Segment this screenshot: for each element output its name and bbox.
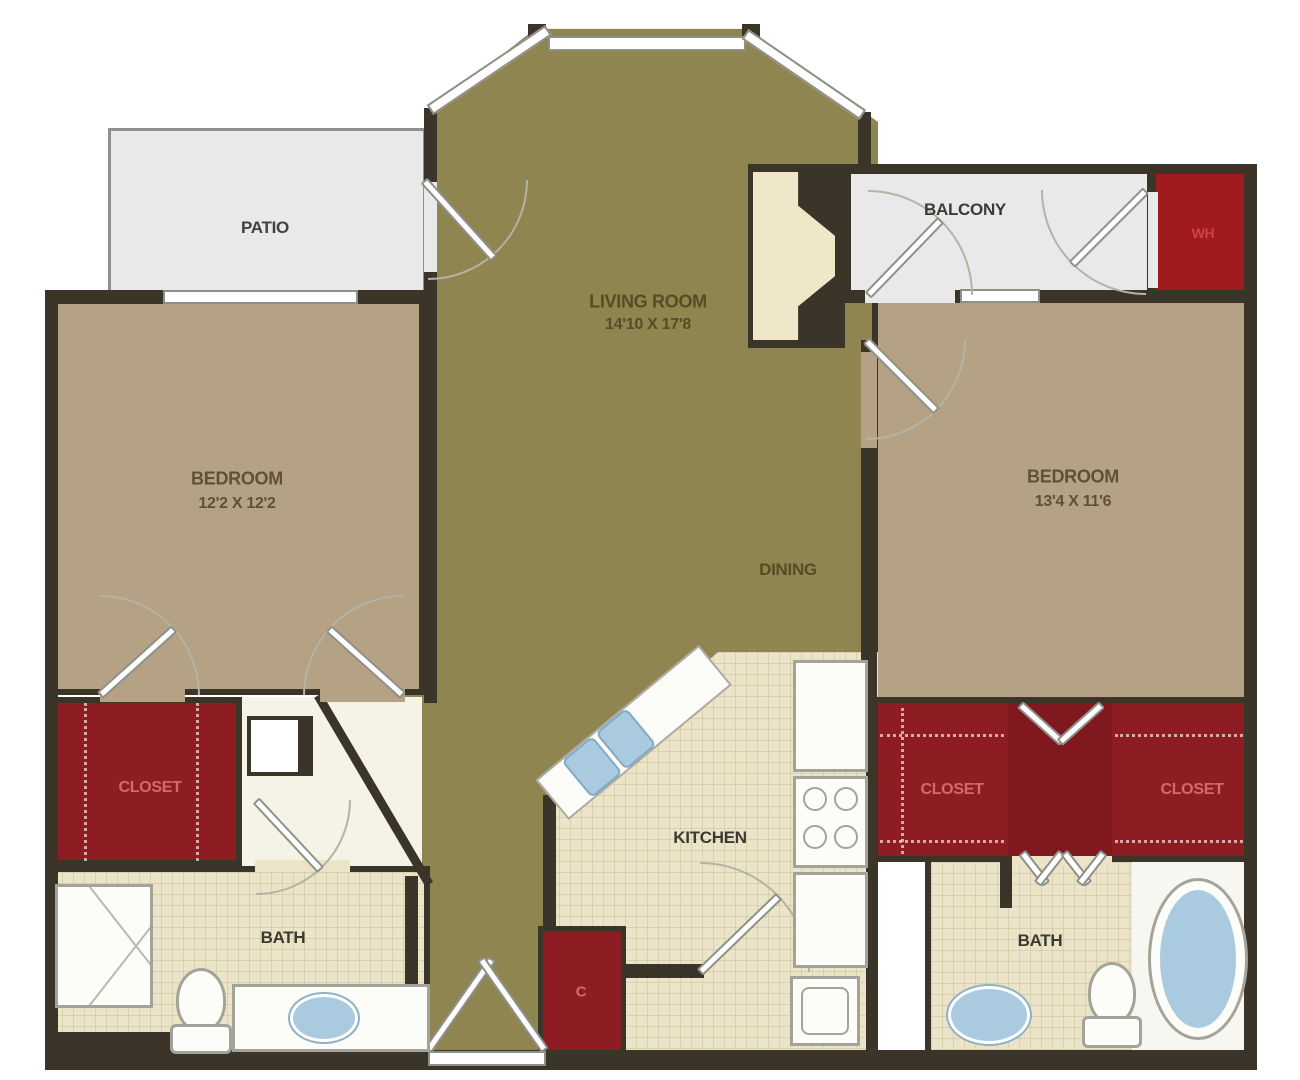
label-dining: DINING <box>759 560 817 580</box>
label-closet-left: CLOSET <box>118 779 181 797</box>
room-patio <box>108 128 426 296</box>
shower-x-1 <box>80 884 153 1008</box>
room-living-dining <box>424 22 878 712</box>
opening-wh-door <box>1148 192 1158 288</box>
label-bath-right: BATH <box>1018 931 1063 951</box>
wall-hall-kitchen <box>543 795 556 930</box>
stove <box>793 776 868 868</box>
stove-burner-1 <box>803 787 827 811</box>
vanity-sink-left <box>290 994 358 1042</box>
wall-bathR-stub <box>1000 856 1012 908</box>
wall-kitchen-bottomleft <box>622 964 704 978</box>
label-bedroom-left: BEDROOM <box>191 469 283 490</box>
label-bedroom-left-dims: 12'2 X 12'2 <box>198 495 275 513</box>
closetR-rod-v <box>901 708 904 854</box>
stove-burner-2 <box>834 787 858 811</box>
floor-plan: PATIO BALCONY WH LIVING ROOM 14'10 X 17'… <box>0 0 1300 1080</box>
window-bedroomL-patio <box>163 290 358 304</box>
label-coat-closet: C <box>576 984 587 1001</box>
closetR-inner-rod-bottom <box>880 840 1004 843</box>
label-living: LIVING ROOM <box>589 292 707 313</box>
stove-burner-3 <box>803 825 827 849</box>
toilet-left-bowl <box>176 968 226 1032</box>
washer-tub <box>801 987 849 1035</box>
washer <box>790 976 860 1046</box>
wall-living-right-upper <box>858 112 871 172</box>
label-balcony: BALCONY <box>924 200 1006 220</box>
vestibule-niche <box>247 716 302 776</box>
closetR-outer-rod-bottom <box>1115 840 1243 843</box>
closetL-rod-2 <box>196 703 199 861</box>
vanity-sink-right <box>948 986 1030 1044</box>
toilet-right-bowl <box>1088 962 1136 1024</box>
refrigerator <box>793 660 868 772</box>
hallway <box>424 695 548 1065</box>
closet-passage <box>1008 703 1112 856</box>
closetR-outer-rod-top <box>1115 734 1243 737</box>
label-closet-right-inner: CLOSET <box>920 781 983 799</box>
label-wh: WH <box>1192 225 1215 241</box>
label-patio: PATIO <box>241 218 289 238</box>
window-bay-top <box>548 36 746 51</box>
label-bath-left: BATH <box>261 928 306 948</box>
entry-threshold <box>428 1051 546 1066</box>
wall-balcony-top <box>836 164 1257 173</box>
stove-burner-4 <box>834 825 858 849</box>
label-bedroom-right-dims: 13'4 X 11'6 <box>1035 493 1111 511</box>
closetR-inner-rod-top <box>880 734 1004 737</box>
closetL-rod-1 <box>84 703 87 861</box>
bathtub-water <box>1160 890 1236 1028</box>
label-living-dims: 14'10 X 17'8 <box>605 316 691 334</box>
toilet-right-tank <box>1082 1016 1142 1048</box>
label-closet-right-outer: CLOSET <box>1160 781 1223 799</box>
shower <box>55 884 153 1008</box>
toilet-left-tank <box>170 1024 232 1054</box>
label-kitchen: KITCHEN <box>673 828 746 848</box>
shower-x-2 <box>80 884 153 1008</box>
kitchen-counter-right <box>793 872 868 968</box>
label-bedroom-right: BEDROOM <box>1027 467 1119 488</box>
bathtub <box>1148 878 1248 1040</box>
